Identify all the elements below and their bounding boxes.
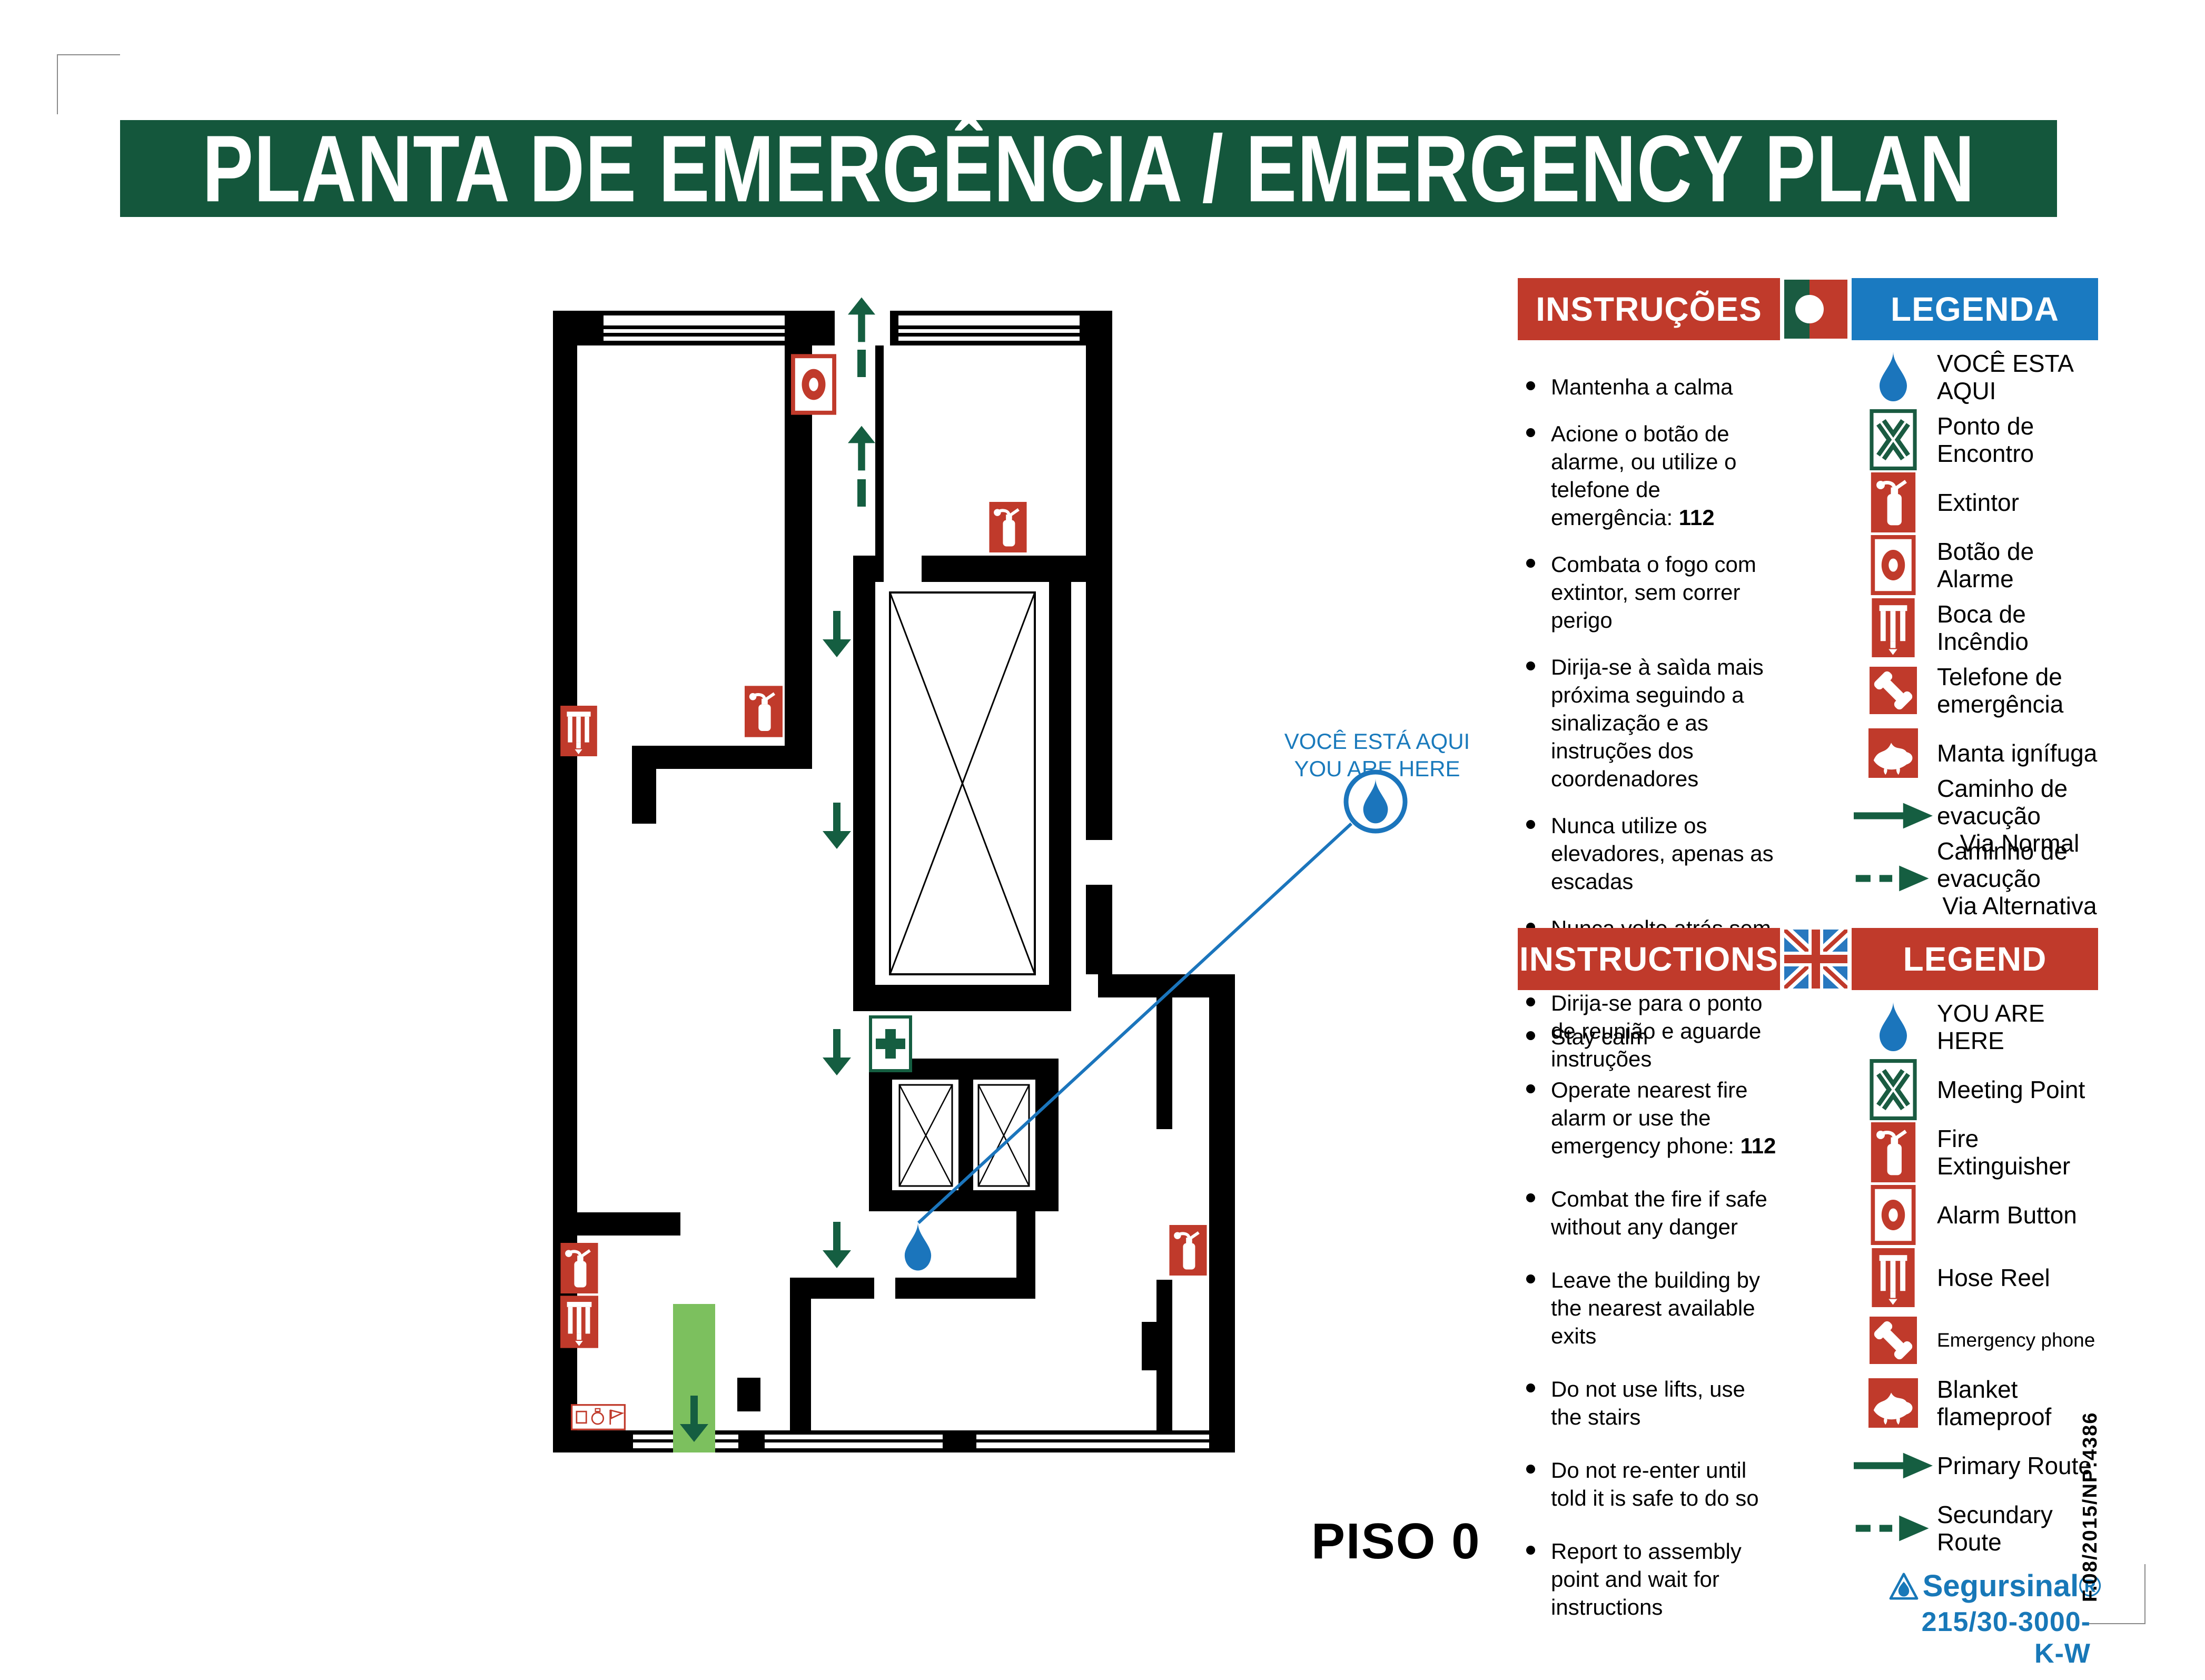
hose-reel-icon <box>1852 596 1935 659</box>
bullet <box>1526 1084 1535 1093</box>
bullet <box>1526 1383 1535 1392</box>
instructions-header-en: INSTRUCTIONS <box>1518 928 1780 990</box>
droplet-icon <box>1852 345 1935 408</box>
emergency-phone-icon <box>1852 659 1935 722</box>
bullet <box>1526 820 1535 829</box>
legend-item: Botão de Alarme <box>1852 533 2102 596</box>
legend-item: Hose Reel <box>1852 1246 2102 1309</box>
floor-label: PISO 0 <box>1311 1513 1480 1570</box>
uk-flag-icon <box>1784 929 1847 989</box>
legend-item: Boca de Incêndio <box>1852 596 2102 659</box>
panel-portuguese: INSTRUÇÕES LEGENDA Mantenha a calma Acio… <box>1518 278 2102 928</box>
hose-reel-icon <box>1852 1246 1935 1309</box>
instruction-item: Leave the building by the nearest availa… <box>1521 1266 1780 1350</box>
legend-list-pt: VOCÊ ESTA AQUI Ponto de Encontro E <box>1852 345 2102 910</box>
meeting-point-icon <box>1852 408 1935 471</box>
product-code: 215/30-3000-K-W <box>1896 1606 2091 1669</box>
instructions-title-pt: INSTRUÇÕES <box>1536 290 1762 329</box>
meeting-point-icon <box>1852 1058 1935 1121</box>
instruction-item: Combata o fogo com extintor, sem correr … <box>1521 550 1780 634</box>
page-title: PLANTA DE EMERGÊNCIA / EMERGENCY PLAN <box>202 120 1975 217</box>
legend-item: Meeting Point <box>1852 1058 2102 1121</box>
instruction-item: Mantenha a calma <box>1521 373 1780 401</box>
panel-english: INSTRUCTIONS LEGEND Stay calm Operate ne… <box>1518 928 2102 1581</box>
legend-item: Alarm Button <box>1852 1183 2102 1246</box>
legend-item: Emergency phone <box>1852 1309 2102 1371</box>
legend-item: Blanket flameproof <box>1852 1371 2102 1434</box>
route-solid-icon <box>1852 784 1935 847</box>
extinguisher-icon <box>1852 1121 1935 1183</box>
you-are-here-anchor <box>1342 768 1409 835</box>
legend-item: VOCÊ ESTA AQUI <box>1852 345 2102 408</box>
instructions-list-en: Stay calm Operate nearest fire alarm or … <box>1521 1023 1780 1621</box>
legend-item: Telefone de emergência <box>1852 659 2102 722</box>
emergency-phone-icon <box>1852 1309 1935 1371</box>
legend-header-en: LEGEND <box>1852 928 2098 990</box>
legend-item: Secundary Route <box>1852 1497 2102 1559</box>
fire-blanket-icon <box>1852 722 1935 784</box>
instruction-item: Nunca utilize os elevadores, apenas as e… <box>1521 812 1780 895</box>
bullet <box>1526 428 1535 437</box>
route-solid-icon <box>1852 1434 1935 1497</box>
document-code: F.08/2015/NP:4386 <box>2079 1370 2102 1602</box>
legend-title-en: LEGEND <box>1903 940 2047 979</box>
legend-item: Caminho de evacução Via Alternativa <box>1852 847 2102 910</box>
legend-item: Extintor <box>1852 471 2102 533</box>
legend-item: Ponto de Encontro <box>1852 408 2102 471</box>
bullet <box>1526 1546 1535 1555</box>
floor-plan <box>553 295 1235 1459</box>
legend-item: YOU ARE HERE <box>1852 995 2102 1058</box>
bullet <box>1526 1031 1535 1040</box>
legend-title-pt: LEGENDA <box>1891 290 2059 329</box>
brand-block: Segursinal® <box>1906 1568 2101 1604</box>
bullet <box>1526 1193 1535 1202</box>
extinguisher-icon <box>1852 471 1935 533</box>
legend-item: Fire Extinguisher <box>1852 1121 2102 1183</box>
bullet <box>1526 381 1535 390</box>
instruction-item: Operate nearest fire alarm or use the em… <box>1521 1076 1780 1160</box>
stair-elevator-shaft <box>890 592 1035 974</box>
brand-name: Segursinal® <box>1923 1568 2101 1604</box>
you-are-here-label-pt: VOCÊ ESTÁ AQUI <box>1274 728 1480 755</box>
legend-item: Primary Route <box>1852 1434 2102 1497</box>
emergency-plan-page: PLANTA DE EMERGÊNCIA / EMERGENCY PLAN <box>0 0 2205 1680</box>
exit-corridor-highlight <box>673 1304 715 1452</box>
instruction-item: Dirija-se à saìda mais próxima seguindo … <box>1521 653 1780 793</box>
instruction-item: Acione o botão de alarme, ou utilize o t… <box>1521 420 1780 531</box>
page-title-banner: PLANTA DE EMERGÊNCIA / EMERGENCY PLAN <box>120 120 2057 217</box>
droplet-icon <box>1852 995 1935 1058</box>
instruction-item: Do not use lifts, use the stairs <box>1521 1375 1780 1431</box>
crop-mark-top-left <box>57 54 120 114</box>
instruction-item: Report to assembly point and wait for in… <box>1521 1537 1780 1621</box>
fire-blanket-icon <box>1852 1371 1935 1434</box>
instruction-item: Do not re-enter until told it is safe to… <box>1521 1456 1780 1512</box>
legend-list-en: YOU ARE HERE Meeting Point Fire Ex <box>1852 995 2102 1559</box>
route-dashed-icon <box>1852 1497 1935 1559</box>
bullet <box>1526 1274 1535 1283</box>
bullet <box>1526 1465 1535 1474</box>
segursinal-logo-icon <box>1889 1573 1919 1600</box>
alarm-button-icon <box>1852 533 1935 596</box>
bullet <box>1526 661 1535 670</box>
instruction-item: Stay calm <box>1521 1023 1780 1051</box>
instructions-title-en: INSTRUCTIONS <box>1519 940 1778 979</box>
portugal-flag-icon <box>1784 279 1847 339</box>
instruction-item: Combat the fire if safe without any dang… <box>1521 1185 1780 1241</box>
alarm-button-icon <box>1852 1183 1935 1246</box>
route-dashed-icon <box>1852 847 1935 910</box>
legend-header-pt: LEGENDA <box>1852 278 2098 340</box>
instructions-header-pt: INSTRUÇÕES <box>1518 278 1780 340</box>
bullet <box>1526 559 1535 568</box>
